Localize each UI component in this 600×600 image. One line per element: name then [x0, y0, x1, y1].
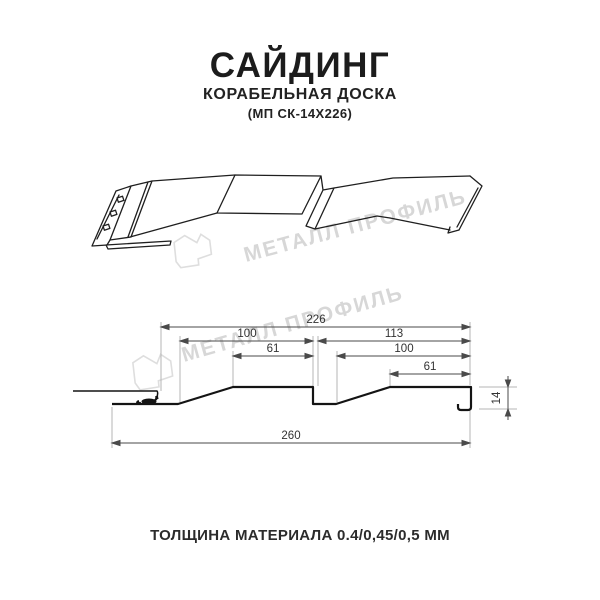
nail-flange-inner-edge — [97, 195, 119, 239]
dim-overall-bottom: 260 — [112, 430, 470, 446]
technical-drawing: МЕТАЛЛ ПРОФИЛЬ МЕТАЛЛ ПРОФИЛЬ — [0, 0, 600, 600]
product-card: САЙДИНГ КОРАБЕЛЬНАЯ ДОСКА (МП СК-14Х226)… — [0, 0, 600, 600]
dim-right-pitch: 100 — [337, 343, 470, 359]
dim-depth: 14 — [491, 376, 511, 420]
lock-hem — [106, 241, 171, 249]
watermark-brand-text: МЕТАЛЛ ПРОФИЛЬ — [241, 185, 469, 267]
dim-right-span: 113 — [318, 328, 470, 344]
dim-label: 226 — [306, 314, 325, 326]
watermark-lower: МЕТАЛЛ ПРОФИЛЬ — [129, 281, 406, 392]
dim-label: 61 — [267, 343, 280, 355]
dim-label: 113 — [385, 328, 403, 340]
dim-label: 100 — [237, 328, 256, 340]
dimension-annotations: 226 100 61 113 100 — [112, 314, 511, 446]
watermark-brand-text: МЕТАЛЛ ПРОФИЛЬ — [179, 281, 406, 366]
dim-right-flat: 61 — [390, 361, 470, 377]
nail-hole-icon — [103, 224, 110, 230]
nail-hole-icon — [117, 196, 124, 202]
brand-logo-outline-icon — [170, 230, 215, 271]
dim-label: 260 — [281, 430, 300, 442]
board1-face — [217, 175, 321, 214]
section-profile-line — [112, 387, 471, 410]
dim-overall-top: 226 — [161, 314, 470, 330]
dim-label: 14 — [491, 391, 503, 404]
nail-hole-icon — [110, 210, 117, 216]
dim-label: 100 — [394, 343, 413, 355]
brand-logo-outline-icon — [129, 349, 176, 392]
dim-label: 61 — [424, 361, 437, 373]
section-neighbor-flange — [73, 391, 158, 399]
material-thickness-note: ТОЛЩИНА МАТЕРИАЛА 0.4/0,45/0,5 ММ — [0, 527, 600, 544]
